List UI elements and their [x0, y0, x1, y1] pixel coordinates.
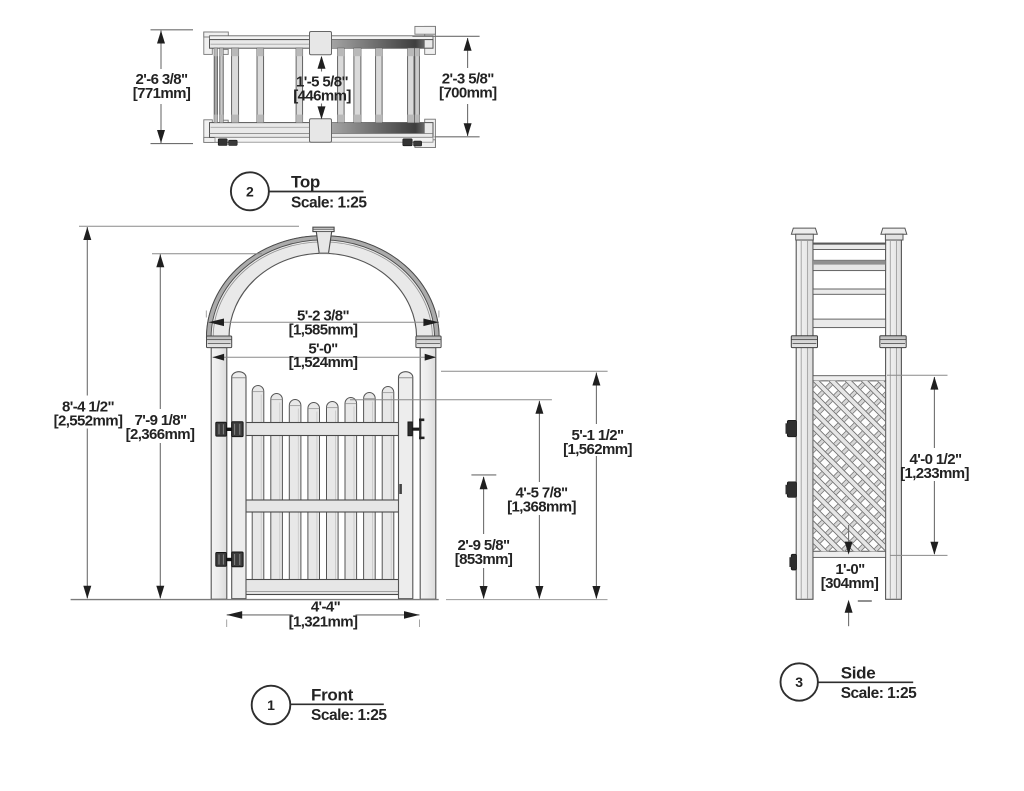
svg-text:[1,562mm]: [1,562mm]	[563, 441, 632, 458]
svg-text:3: 3	[795, 674, 803, 690]
svg-text:Scale: 1:25: Scale: 1:25	[841, 685, 917, 702]
svg-text:[700mm]: [700mm]	[439, 85, 497, 102]
svg-text:[1,368mm]: [1,368mm]	[507, 499, 576, 516]
svg-text:Top: Top	[291, 173, 320, 192]
svg-text:[304mm]: [304mm]	[821, 575, 879, 592]
svg-text:Front: Front	[311, 686, 354, 705]
svg-text:[2,366mm]: [2,366mm]	[126, 426, 195, 443]
svg-text:[1,585mm]: [1,585mm]	[289, 322, 358, 339]
svg-text:[446mm]: [446mm]	[293, 88, 351, 105]
svg-text:Side: Side	[841, 664, 876, 683]
svg-text:[853mm]: [853mm]	[455, 551, 513, 568]
svg-text:[1,524mm]: [1,524mm]	[289, 354, 358, 371]
svg-text:1: 1	[267, 697, 275, 713]
svg-text:Scale: 1:25: Scale: 1:25	[311, 707, 387, 724]
svg-text:Scale: 1:25: Scale: 1:25	[291, 194, 367, 211]
svg-text:[771mm]: [771mm]	[133, 85, 191, 102]
svg-text:[1,321mm]: [1,321mm]	[289, 614, 358, 631]
svg-text:[2,552mm]: [2,552mm]	[54, 413, 123, 430]
svg-text:2: 2	[246, 184, 254, 200]
svg-text:[1,233mm]: [1,233mm]	[900, 465, 969, 482]
